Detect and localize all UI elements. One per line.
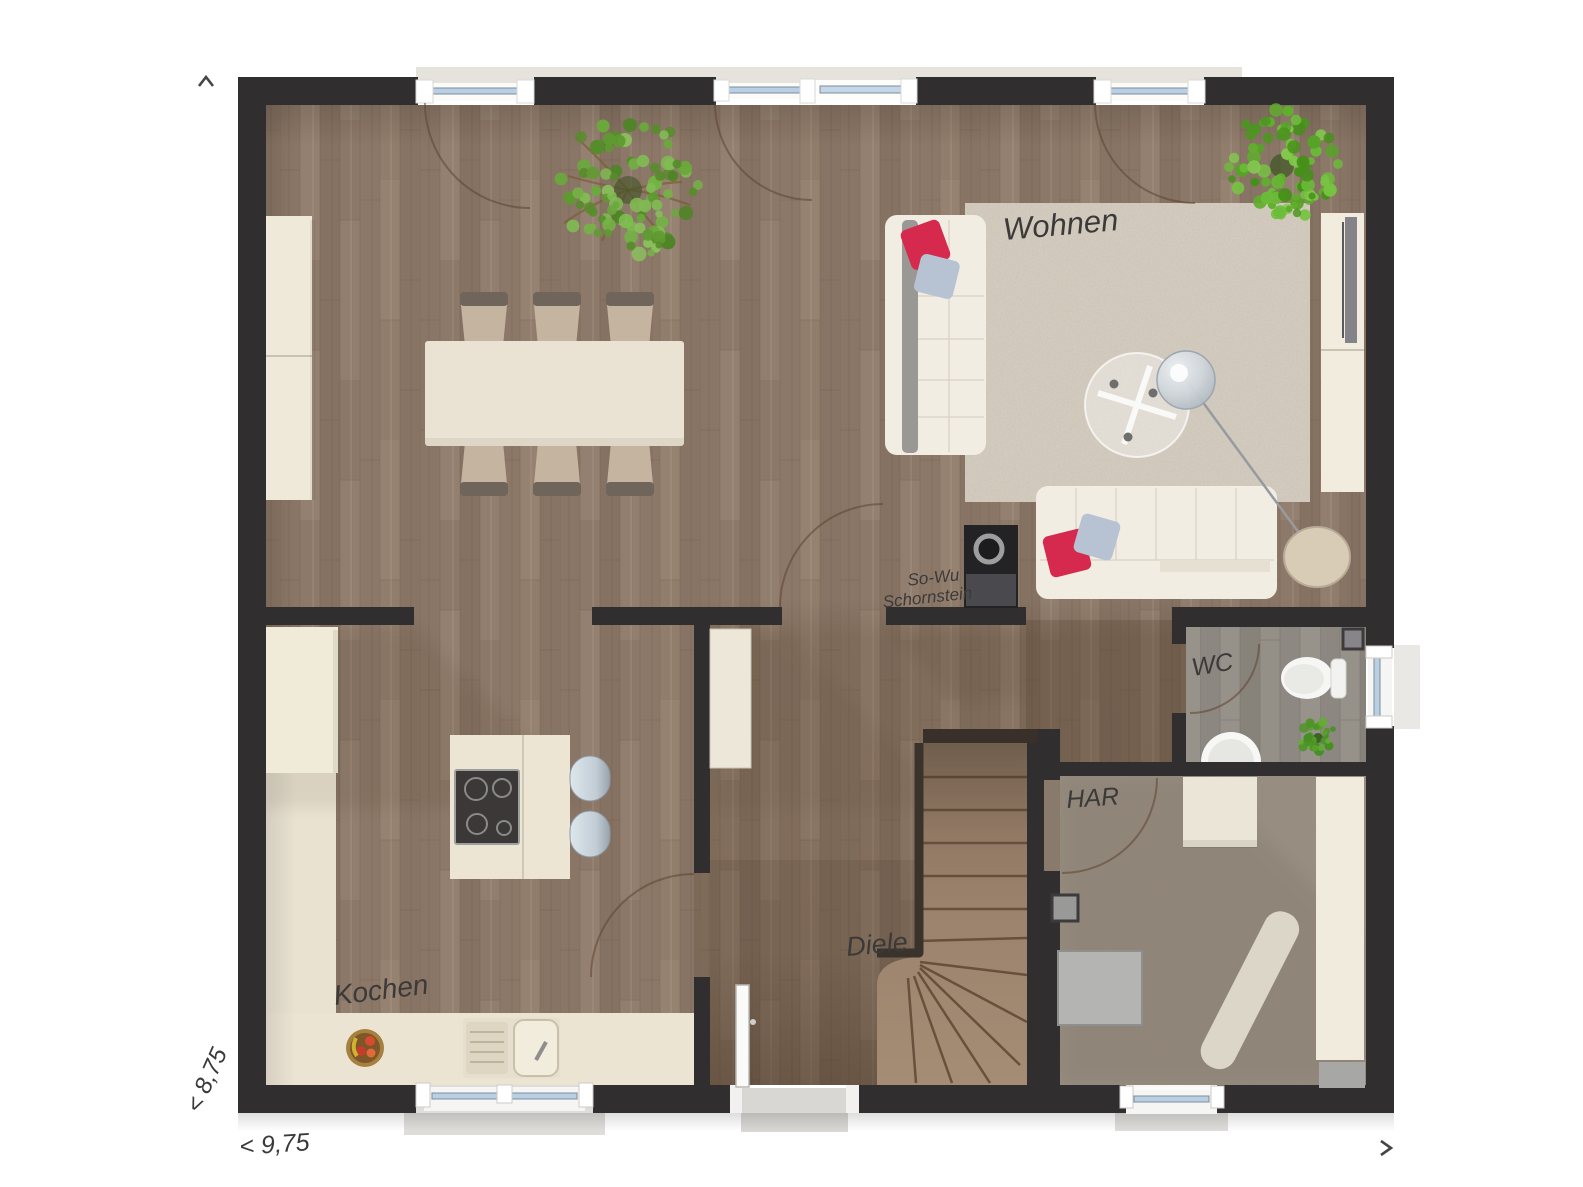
svg-text:HAR: HAR (1065, 782, 1120, 814)
svg-text:< 8,75: < 8,75 (181, 1043, 233, 1116)
svg-text:Diele: Diele (845, 927, 909, 962)
svg-text:< 9,75: < 9,75 (238, 1128, 310, 1161)
